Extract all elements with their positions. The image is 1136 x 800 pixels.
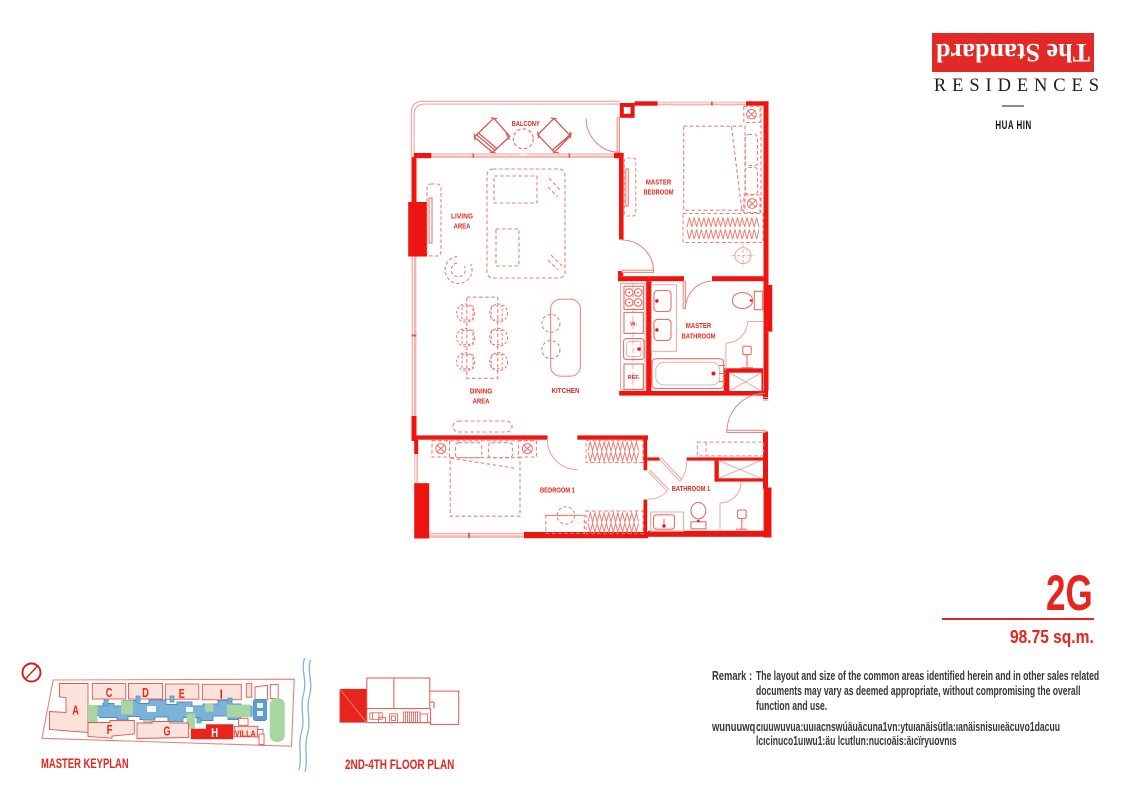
svg-text:VILLA: VILLA <box>235 729 256 739</box>
svg-text:G: G <box>164 724 171 738</box>
svg-text:AREA: AREA <box>454 222 471 231</box>
svg-text:BATHROOM 1: BATHROOM 1 <box>672 484 711 493</box>
svg-text:W.: W. <box>630 322 637 328</box>
svg-text:DINING: DINING <box>470 387 493 396</box>
svg-text:BALCONY: BALCONY <box>512 119 540 128</box>
svg-text:I: I <box>220 688 223 702</box>
svg-text:BATHROOM: BATHROOM <box>682 331 716 340</box>
svg-text:F: F <box>107 723 113 737</box>
svg-text:MASTER: MASTER <box>686 321 712 330</box>
svg-text:H: H <box>211 726 218 740</box>
svg-text:D: D <box>142 686 149 700</box>
svg-text:REF.: REF. <box>628 375 640 381</box>
svg-text:BEDROOM: BEDROOM <box>644 188 674 197</box>
svg-text:A: A <box>72 704 79 718</box>
svg-text:MASTER: MASTER <box>646 178 672 187</box>
svg-text:LIVING: LIVING <box>451 212 473 221</box>
svg-text:AREA: AREA <box>473 397 490 406</box>
svg-text:BEDROOM 1: BEDROOM 1 <box>540 485 576 494</box>
svg-text:E: E <box>179 687 185 701</box>
svg-text:KITCHEN: KITCHEN <box>552 386 580 395</box>
svg-text:C: C <box>106 686 113 700</box>
